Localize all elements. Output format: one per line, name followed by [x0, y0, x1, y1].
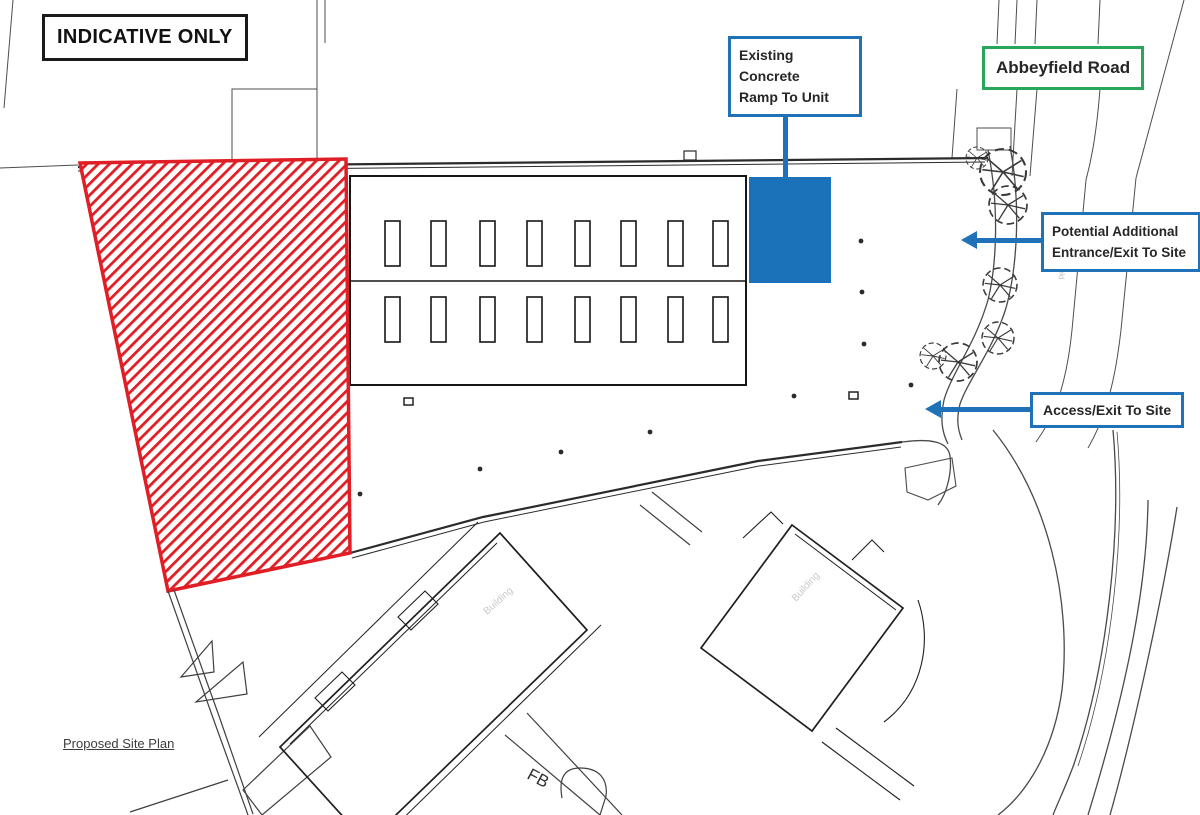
red-hatch-area [80, 159, 350, 591]
street-trees [920, 147, 1027, 381]
building-label-left: Building [482, 585, 516, 617]
site-plan-page: Building Building Abbeyfield FB INDICATI… [0, 0, 1200, 815]
building-label-right: Building [790, 570, 822, 604]
concrete-ramp-block [749, 177, 831, 283]
arrow-shaft [974, 238, 1041, 243]
road-curves [993, 430, 1177, 815]
access-exit-callout: Access/Exit To Site [1030, 392, 1184, 428]
ramp-callout: Existing Concrete Ramp To Unit [728, 36, 862, 117]
potential-entrance-line2: Entrance/Exit To Site [1052, 242, 1190, 263]
tree-icon [939, 343, 977, 381]
arrow-shaft [938, 407, 1030, 412]
road-name-box: Abbeyfield Road [982, 46, 1144, 90]
tree-icon [980, 149, 1026, 195]
south-building-right [701, 525, 903, 731]
tree-icon [982, 322, 1014, 354]
southwest-lines [130, 590, 331, 815]
ramp-callout-line1: Existing Concrete [739, 45, 851, 87]
site-boundary-south [350, 442, 902, 558]
main-building [350, 176, 746, 385]
indicative-only-box: INDICATIVE ONLY [42, 14, 248, 61]
tree-icon [920, 343, 946, 369]
kerb-lines [902, 146, 1017, 505]
fb-label: FB [524, 765, 552, 792]
potential-entrance-arrow-icon [961, 231, 1041, 249]
potential-entrance-callout: Potential Additional Entrance/Exit To Si… [1041, 212, 1200, 272]
plan-title: Proposed Site Plan [63, 736, 174, 751]
access-exit-arrow-icon [925, 400, 1030, 418]
ramp-callout-line2: Ramp To Unit [739, 87, 851, 108]
potential-entrance-line1: Potential Additional [1052, 221, 1190, 242]
